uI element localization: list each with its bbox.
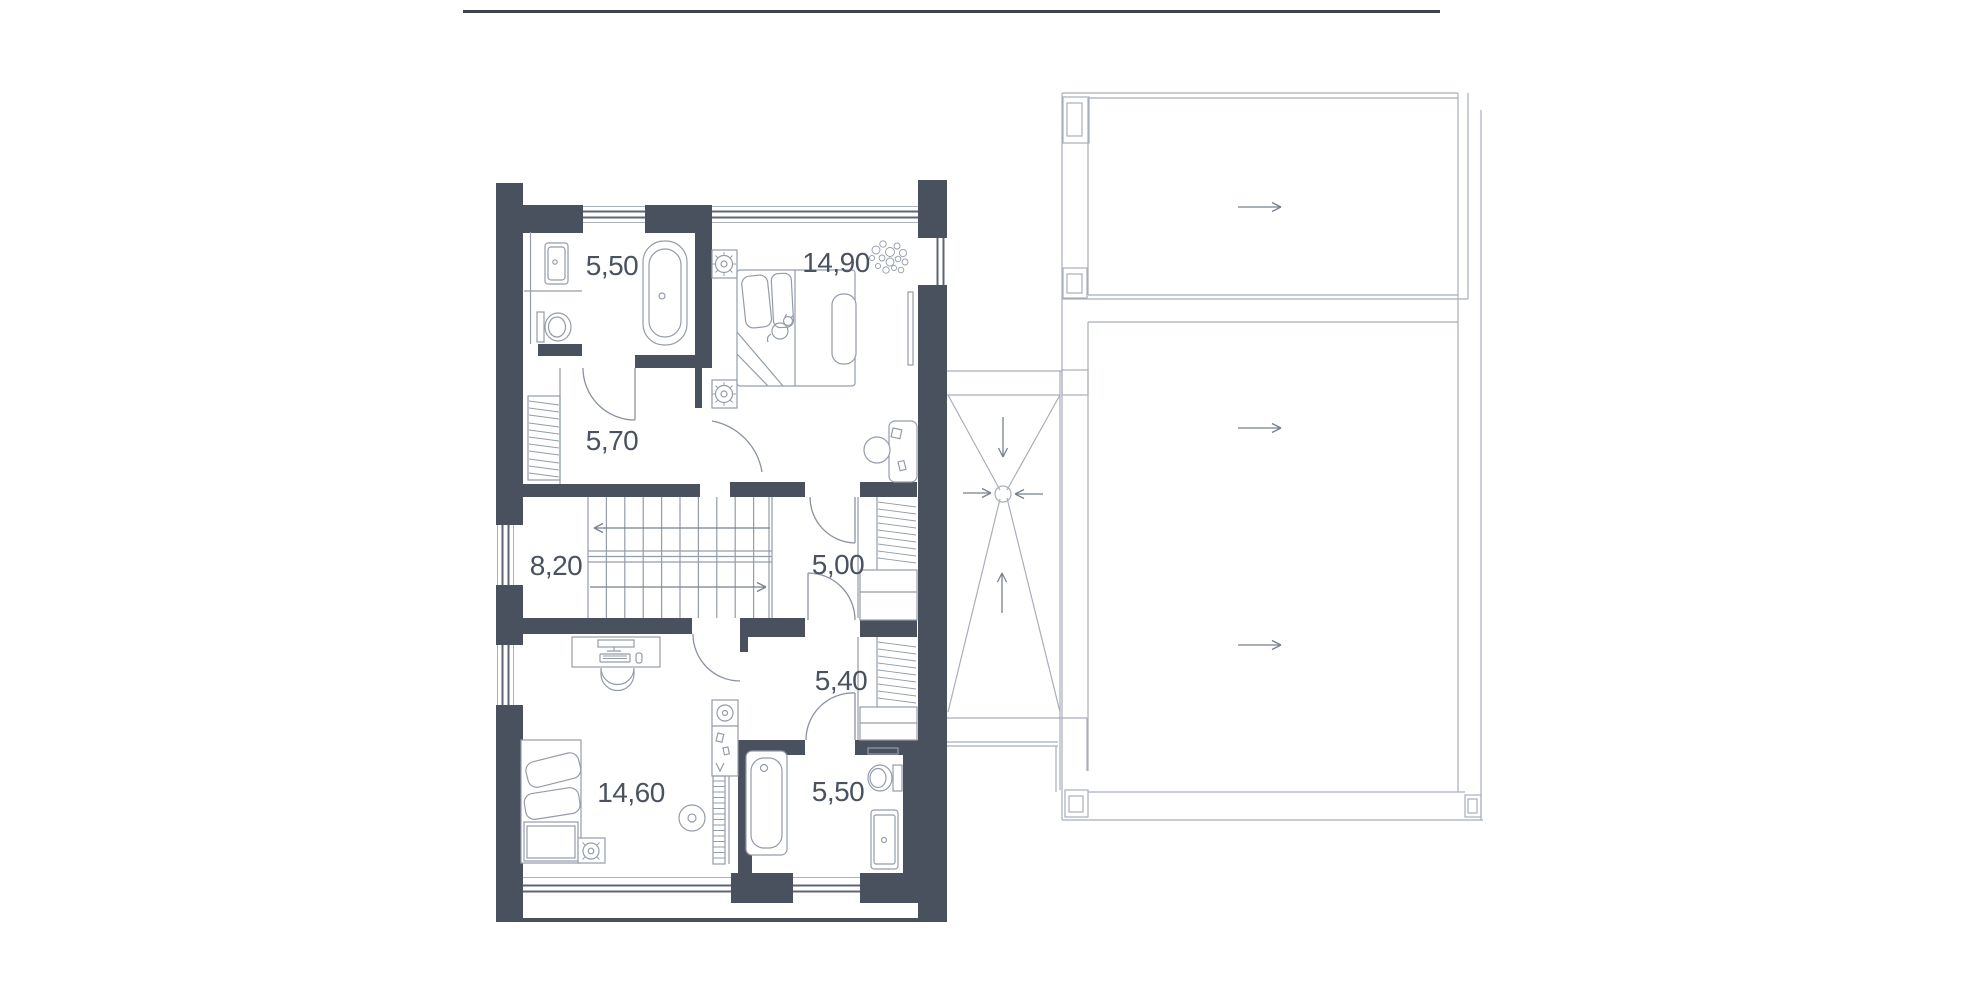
bathroom-top-fixtures — [524, 232, 687, 345]
sink-bottom — [871, 810, 898, 869]
bed-single — [521, 740, 581, 863]
room-area-label-bedroom-top: 14,90 — [802, 247, 870, 278]
drainage-lines — [947, 371, 1087, 792]
drain-arrow-right — [963, 489, 991, 498]
bedroom-bench — [832, 294, 856, 364]
roof-junction-box — [1062, 370, 1088, 395]
door-corridor-top — [810, 497, 855, 543]
room-area-label-wardrobe: 5,40 — [815, 665, 868, 696]
window-right — [938, 238, 944, 285]
room-area-label-staircase: 8,20 — [530, 550, 583, 581]
room-area-label-bedroom-bottom: 14,60 — [597, 777, 665, 808]
header-divider-line — [463, 10, 1440, 13]
stair-down-arrow — [590, 583, 766, 592]
office-chair — [601, 668, 634, 691]
desk-small — [889, 421, 917, 482]
room-area-label-bathroom-bottom: 5,50 — [812, 776, 865, 807]
staircase — [588, 497, 772, 618]
roof-slope-arrow-3 — [1238, 641, 1281, 650]
towel-radiator — [713, 776, 725, 864]
window-top-1 — [583, 212, 645, 218]
drainage-strip — [947, 371, 1087, 792]
door-corridor-bottom — [808, 573, 855, 620]
window-left-1 — [503, 525, 509, 585]
desk-chair — [864, 437, 890, 463]
room-area-label-bathroom-top: 5,50 — [586, 250, 639, 281]
drain-arrow-down — [999, 417, 1008, 457]
stair-treads — [588, 497, 772, 618]
window-top-2 — [712, 212, 918, 218]
lamp-icon — [716, 256, 733, 273]
window-left-2 — [503, 645, 509, 705]
roof-slope-arrow-2 — [1238, 424, 1281, 433]
floorplan-canvas: 5,5014,905,708,205,005,4014,605,50 — [0, 0, 1980, 990]
laundry-cabinet — [712, 726, 738, 776]
bedroom-bottom-furniture — [521, 637, 738, 864]
floor-plan-page: 5,5014,905,708,205,005,4014,605,50 — [0, 0, 1980, 990]
door-bedroom-top — [712, 421, 762, 472]
stool — [679, 805, 705, 831]
stair-up-arrow — [594, 524, 770, 533]
lamp-icon — [583, 843, 599, 859]
door-bathroom-top — [583, 368, 635, 420]
door-wardrobe — [806, 693, 855, 740]
roof-slope-arrow-1 — [1238, 203, 1281, 212]
washing-machine — [712, 700, 738, 726]
drain-arrow-up — [998, 573, 1007, 613]
room-area-label-hall: 5,70 — [586, 425, 639, 456]
window-bottom-1 — [523, 886, 731, 892]
drain-arrow-left — [1015, 490, 1043, 499]
plant-icon — [869, 241, 908, 273]
room-area-label-corridor: 5,00 — [812, 549, 865, 580]
roof-plan — [1062, 93, 1483, 820]
toilet-top-tank — [537, 312, 544, 342]
toilet-bottom-tank — [893, 765, 902, 791]
corridor-cabinet — [860, 570, 917, 620]
bathroom-bottom-fixtures — [746, 748, 902, 869]
tv-console — [908, 292, 913, 365]
window-bottom-2 — [793, 886, 860, 892]
drain-circle-icon — [995, 486, 1011, 502]
lamp-icon — [716, 386, 733, 403]
door-bedroom-bottom — [693, 634, 740, 681]
